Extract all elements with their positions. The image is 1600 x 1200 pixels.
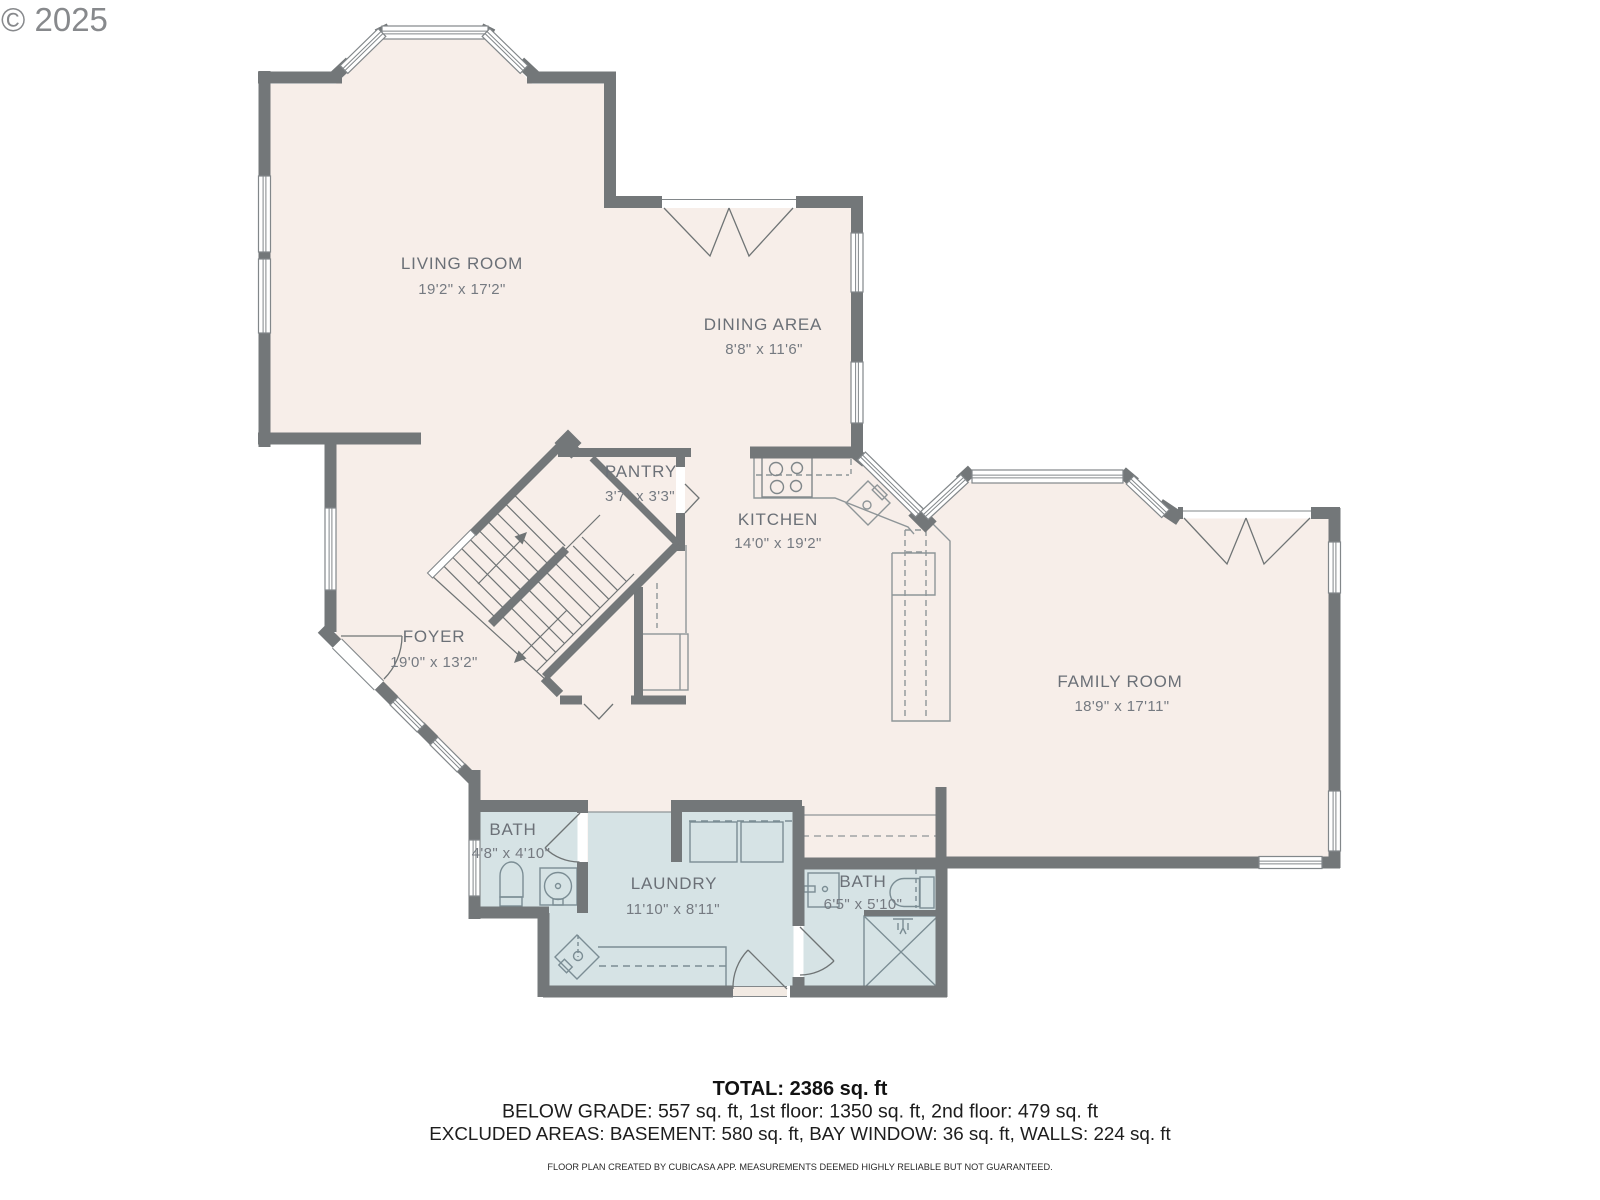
svg-text:18'9" x 17'11": 18'9" x 17'11" <box>1074 698 1169 715</box>
svg-text:8'8" x 11'6": 8'8" x 11'6" <box>725 341 803 358</box>
svg-text:FLOOR PLAN CREATED BY CUBICASA: FLOOR PLAN CREATED BY CUBICASA APP. MEAS… <box>547 1162 1052 1172</box>
svg-text:11'10" x 8'11": 11'10" x 8'11" <box>626 901 720 918</box>
svg-text:PANTRY: PANTRY <box>605 462 677 481</box>
svg-text:LAUNDRY: LAUNDRY <box>631 874 718 893</box>
svg-text:© 2025: © 2025 <box>1 1 108 38</box>
svg-text:EXCLUDED AREAS: BASEMENT: 580: EXCLUDED AREAS: BASEMENT: 580 sq. ft, BA… <box>429 1123 1171 1144</box>
svg-text:DINING AREA: DINING AREA <box>704 315 822 334</box>
svg-text:6'5" x 5'10": 6'5" x 5'10" <box>824 896 903 913</box>
svg-text:BELOW GRADE: 557 sq. ft, 1st f: BELOW GRADE: 557 sq. ft, 1st floor: 1350… <box>502 1101 1099 1123</box>
svg-text:3'7" x 3'3": 3'7" x 3'3" <box>605 488 675 505</box>
svg-text:LIVING ROOM: LIVING ROOM <box>401 254 523 273</box>
svg-text:19'0" x 13'2": 19'0" x 13'2" <box>390 654 477 671</box>
svg-text:BATH: BATH <box>489 820 536 839</box>
svg-text:KITCHEN: KITCHEN <box>738 510 818 529</box>
svg-text:BATH: BATH <box>839 872 886 891</box>
svg-text:4'8" x 4'10": 4'8" x 4'10" <box>472 845 551 862</box>
svg-text:19'2" x 17'2": 19'2" x 17'2" <box>418 281 505 298</box>
svg-text:FOYER: FOYER <box>403 627 466 646</box>
svg-text:14'0" x 19'2": 14'0" x 19'2" <box>734 535 821 552</box>
svg-text:FAMILY ROOM: FAMILY ROOM <box>1057 672 1182 691</box>
svg-text:TOTAL: 2386 sq. ft: TOTAL: 2386 sq. ft <box>713 1078 888 1100</box>
